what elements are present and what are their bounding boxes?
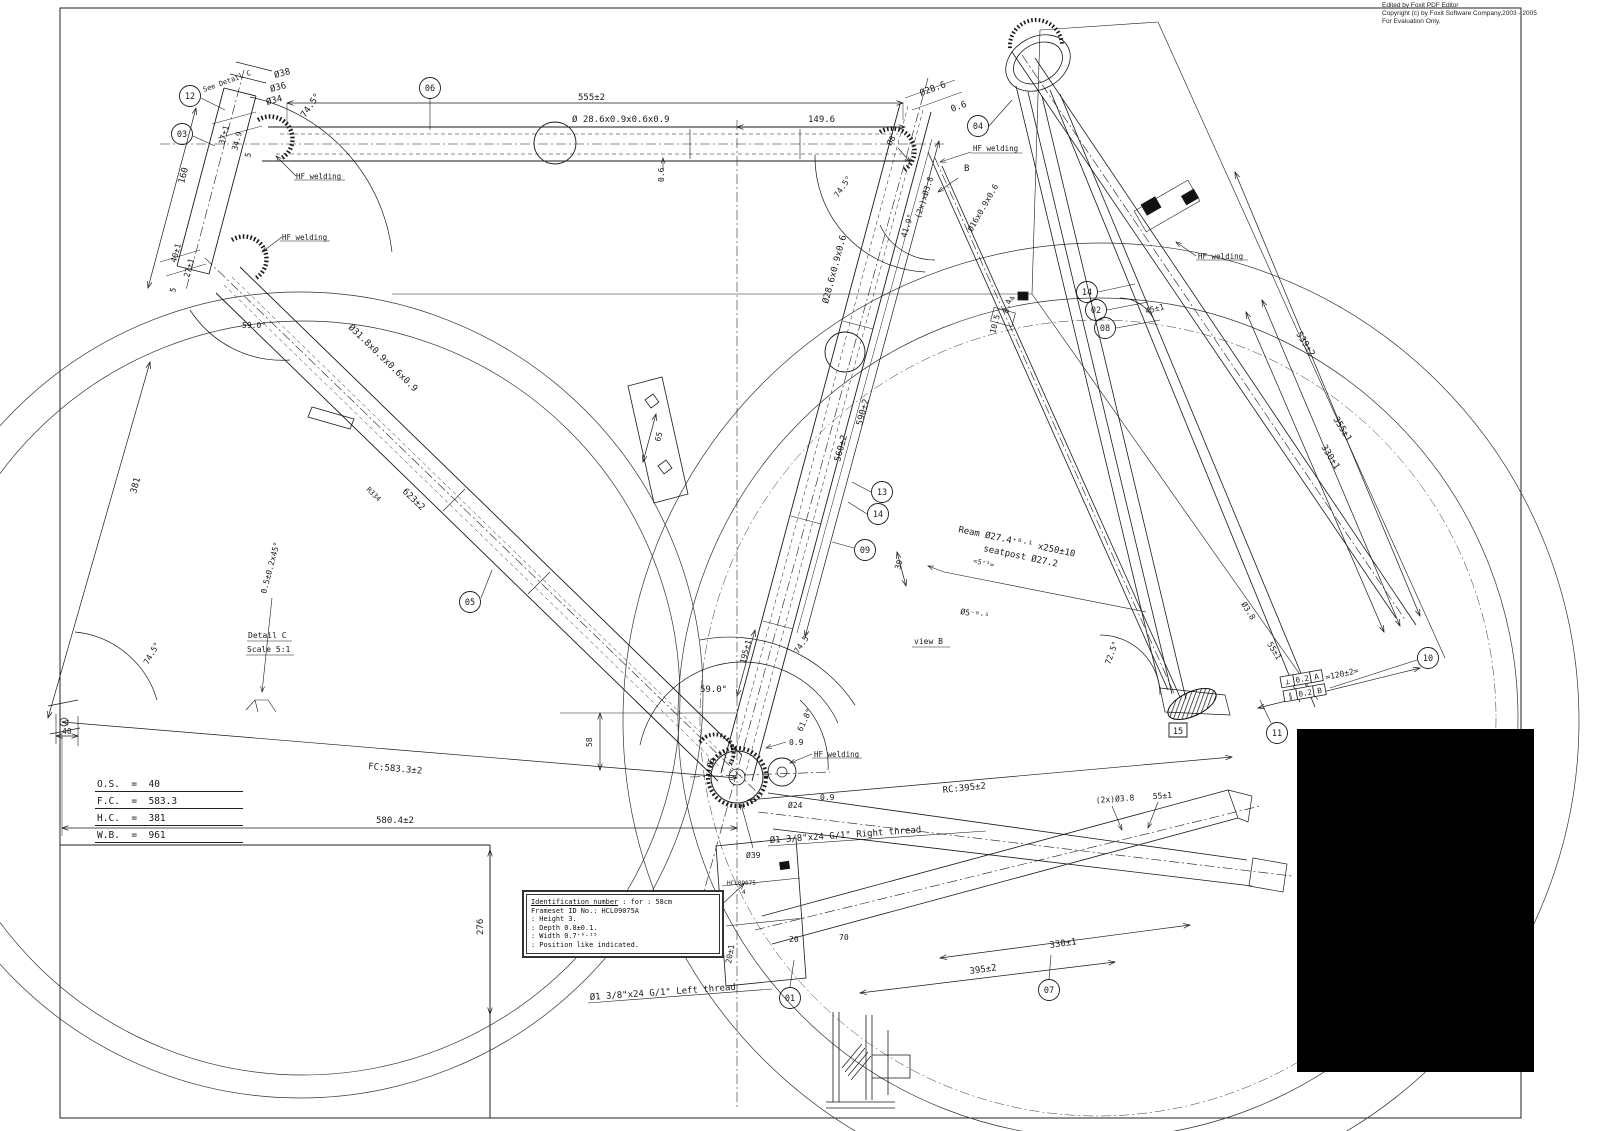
callout-balloon: 10 xyxy=(1418,648,1439,669)
watermark-line: Copyright (c) by Foxit Software Company,… xyxy=(1382,10,1537,18)
frame-drawing: 555±2Ø 28.6x0.9x0.6x0.9149.6Ø28.60.60.6Ø… xyxy=(0,0,1600,1131)
dimension-label: Ø5⁻⁰·⁵ xyxy=(960,606,990,621)
dimension-label: R334 xyxy=(365,486,383,503)
dimension-label: 61.8° xyxy=(796,707,814,733)
slot-detail-part xyxy=(826,1012,910,1108)
dimension-label: HF welding xyxy=(282,233,327,242)
callout-balloon: 04 xyxy=(968,116,989,137)
spec-row: F.C. = 583.3 xyxy=(95,796,243,809)
dimension-label: Ø1 3/8"x24 G/1" Left thread xyxy=(589,982,736,1003)
balloon-number: 08 xyxy=(1100,324,1110,334)
dimension-label: 330±1 xyxy=(1318,443,1341,471)
bottle-boss xyxy=(658,460,672,474)
id-box-line: : Width 0.7⁺⁰·¹⁵ xyxy=(531,932,715,941)
dimension-label: RC:395±2 xyxy=(942,782,986,796)
dimension-label: Ø28.6 xyxy=(918,79,947,99)
balloon-number: 07 xyxy=(1044,986,1054,996)
dimension-label: HF welding xyxy=(296,172,341,181)
dimension-label: 149.6 xyxy=(808,115,835,125)
down-tube xyxy=(205,258,762,797)
callout-balloon: 05 xyxy=(460,592,481,613)
balloon-number: 11 xyxy=(1272,729,1282,739)
dimension-label: 276 xyxy=(476,919,486,935)
id-box-line: : Height 3. xyxy=(531,915,715,924)
boxed-tag: 15 xyxy=(1169,723,1187,737)
dimension-label: =120±2= xyxy=(1325,666,1360,682)
geometry-spec-table: O.S. = 40 F.C. = 583.3 H.C. = 381 W.B. =… xyxy=(95,779,243,847)
callout-balloon: 13 xyxy=(872,482,893,503)
watermark-line: Edited by Foxit PDF Editor xyxy=(1382,2,1537,10)
cable-stop-detail xyxy=(308,407,354,429)
balloon-number: 01 xyxy=(785,994,795,1004)
front-rim-circle xyxy=(0,321,680,1075)
down-tube-centerline xyxy=(205,258,762,797)
dimension-label: 40 xyxy=(62,727,72,736)
dimension-label: HF welding xyxy=(814,750,859,759)
dimension-label: 539±2 xyxy=(1293,330,1316,358)
dimension-label: (2x)Ø3.8 xyxy=(1095,792,1134,805)
dimension-label: 0.6 xyxy=(657,167,666,182)
id-box-line: : Position like indicated. xyxy=(531,941,715,950)
callout-balloon: 07 xyxy=(1039,980,1060,1001)
callout-balloons-layer: 12030604050913141402080107101115 xyxy=(172,78,1439,1009)
weld-knurl xyxy=(258,117,292,158)
balloon-number: 14 xyxy=(873,510,883,520)
angle-arcs xyxy=(75,97,1160,770)
dimension-label: 580.4±2 xyxy=(376,816,414,826)
dimension-label: Detail C xyxy=(248,631,287,640)
callout-balloon: 01 xyxy=(780,988,801,1009)
dimension-label: HF welding xyxy=(1198,252,1243,261)
id-box-line: Frameset ID No.: HCL09075A xyxy=(531,907,715,916)
dimension-label: 27±1 xyxy=(182,257,196,278)
dimension-label: Ø36 xyxy=(269,80,288,95)
dimension-label: 74.5° xyxy=(832,174,853,199)
dimension-label: 20±1 xyxy=(724,944,736,965)
clamp-block xyxy=(1018,292,1028,300)
balloon-number: 04 xyxy=(973,122,983,132)
dimension-label: See Detail C xyxy=(202,69,252,94)
dimension-label: 74.5° xyxy=(299,92,323,120)
dimension-label: B xyxy=(964,164,969,174)
dimension-label: Ø24 xyxy=(788,800,803,810)
gdt-frames-layer: ⊥0.2A∥0.2B xyxy=(1280,670,1326,702)
dimension-label: Ø39 xyxy=(746,850,761,860)
tag-number: 15 xyxy=(1173,727,1183,737)
callout-balloon: 06 xyxy=(420,78,441,99)
dimension-label: Ø34 xyxy=(265,93,284,108)
dimension-label: Ø8 xyxy=(884,133,898,147)
dimension-label: FC:583.3±2 xyxy=(368,762,423,777)
drawing-page: 555±2Ø 28.6x0.9x0.6x0.9149.6Ø28.60.60.6Ø… xyxy=(0,0,1600,1131)
dimension-label: 590±2 xyxy=(855,398,872,427)
dimension-label: HF welding xyxy=(973,144,1018,153)
balloon-number: 14 xyxy=(1082,288,1092,298)
dimension-label: 355±1 xyxy=(1330,415,1353,443)
front-wheel-circle xyxy=(0,292,703,1098)
dimension-label: 20 xyxy=(789,935,799,944)
dimension-label: 59.0° xyxy=(700,685,727,695)
callout-balloon: 11 xyxy=(1267,723,1288,744)
dimension-label: Scale 5:1 xyxy=(247,645,291,654)
dimension-label: 0.5±0.2x45° xyxy=(259,541,281,595)
dimension-label: 74.5° xyxy=(792,630,813,655)
dimension-label: Ø38 xyxy=(273,66,292,81)
dimension-label: Ø1 3/8"x24 G/1" Right thread xyxy=(769,824,921,846)
brake-bridge-block xyxy=(1141,197,1161,215)
dimension-labels-layer: 555±2Ø 28.6x0.9x0.6x0.9149.6Ø28.60.60.6Ø… xyxy=(62,66,1360,1003)
seat-tube xyxy=(694,78,931,928)
callout-balloon: 09 xyxy=(855,540,876,561)
dimension-label: Ø31.8x0.9x0.6x0.9 xyxy=(346,322,420,394)
balloon-number: 13 xyxy=(877,488,887,498)
weld-knurl xyxy=(232,237,266,278)
dimension-label: 555±2 xyxy=(578,93,605,103)
spec-row: H.C. = 381 xyxy=(95,813,243,826)
dimension-label: 55±1 xyxy=(1265,640,1283,661)
top-tube-section-circle xyxy=(534,122,576,164)
dimension-label: Ø16x0.9x0.6 xyxy=(965,182,1000,233)
balloon-number: 02 xyxy=(1091,306,1101,316)
balloon-number: 10 xyxy=(1423,654,1433,664)
head-tube-centerline xyxy=(186,70,244,290)
spec-row: W.B. = 961 xyxy=(95,830,243,843)
watermark-line: For Evaluation Only. xyxy=(1382,18,1537,26)
dimension-label: 10.5 xyxy=(988,313,1002,334)
balloon-number: 03 xyxy=(177,130,187,140)
dimension-label: 623±2 xyxy=(400,487,426,513)
spec-row: O.S. = 40 xyxy=(95,779,243,792)
dimension-label: 0.6 xyxy=(950,100,969,115)
balloon-number: 09 xyxy=(860,546,870,556)
chamfer-sketch xyxy=(246,700,276,712)
dimension-label: HCL09075 xyxy=(727,880,756,887)
weld-knurl xyxy=(880,129,914,170)
seat-tube-section-circle xyxy=(825,332,865,372)
callout-balloon: 12 xyxy=(180,86,201,107)
callout-balloon: 14 xyxy=(868,504,889,525)
dimension-label: Ø 28.6x0.9x0.6x0.9 xyxy=(572,114,670,125)
dimension-label: 74.5° xyxy=(142,641,162,666)
balloon-number: 05 xyxy=(465,598,475,608)
dimension-label: 381 xyxy=(129,476,143,494)
dimension-label: 4 xyxy=(742,889,746,896)
dimension-label: 395±2 xyxy=(969,963,997,977)
identification-box: Identification number : for : 58cm Frame… xyxy=(522,890,724,958)
dimension-label: 41.9° xyxy=(899,213,915,239)
redaction-overlay xyxy=(1297,729,1534,1072)
balloon-number: 06 xyxy=(425,84,435,94)
dimension-label: 58 xyxy=(585,737,594,747)
dimension-label: 4 xyxy=(1008,295,1017,301)
dimension-label: =5⁺¹= xyxy=(973,557,995,569)
dimension-label: 0.9 xyxy=(820,793,835,802)
foxit-watermark: Edited by Foxit PDF Editor Copyright (c)… xyxy=(1382,2,1537,26)
dimension-label: 5 xyxy=(243,151,253,158)
dimension-label: Ø5 xyxy=(704,756,716,768)
dimension-label: 55±1 xyxy=(1153,791,1173,801)
balloon-number: 12 xyxy=(185,92,195,102)
id-box-title: Identification number : for : 58cm xyxy=(531,898,715,907)
dimension-label: 65 xyxy=(653,431,664,443)
dimension-label: 72.5° xyxy=(1103,640,1120,666)
dimension-label: 330±1 xyxy=(1049,937,1077,951)
brake-bridge-block xyxy=(1181,189,1198,205)
dimension-label: 59.0° xyxy=(242,321,266,330)
chain-stays xyxy=(755,790,1292,944)
weld-knurl xyxy=(700,734,734,764)
seat-tube-centerline xyxy=(694,78,928,928)
bottle-boss xyxy=(645,394,659,408)
dimension-label: view B xyxy=(914,637,943,646)
dimension-label: 70 xyxy=(839,933,849,942)
id-box-line: : Depth 0.8±0.1. xyxy=(531,924,715,933)
dimension-label: 30 xyxy=(893,559,904,571)
dimension-label: 5 xyxy=(168,286,178,293)
dimension-label: 0.9 xyxy=(789,738,804,747)
